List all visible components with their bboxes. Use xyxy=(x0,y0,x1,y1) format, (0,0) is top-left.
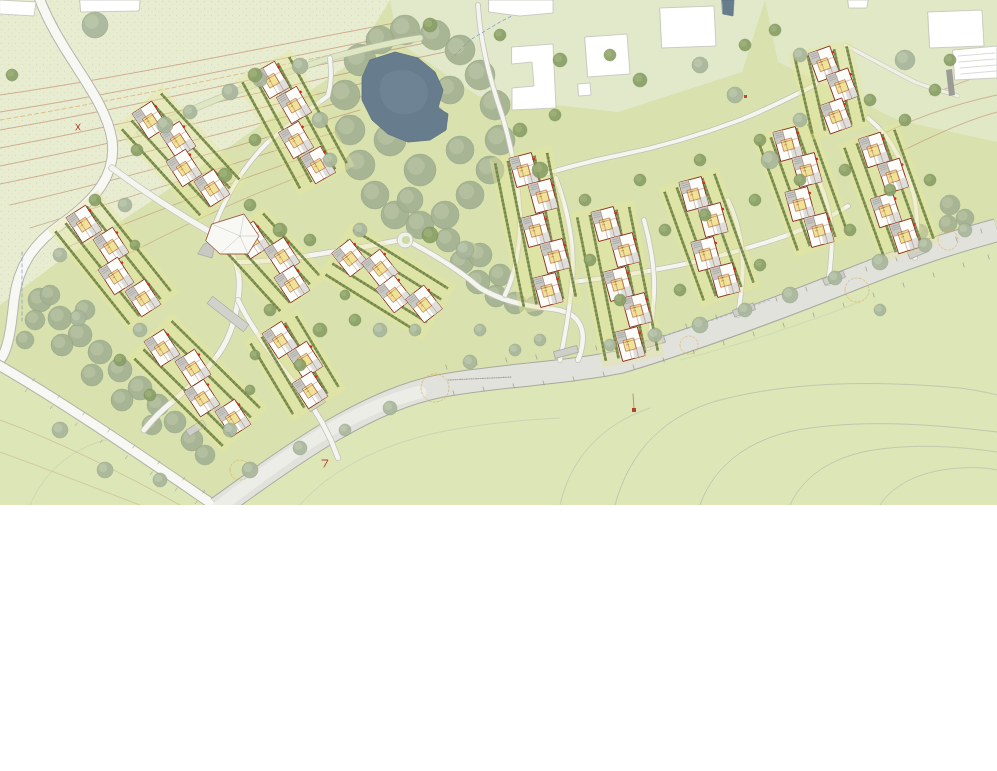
site-plan-page xyxy=(0,0,997,771)
empty-margin xyxy=(0,505,997,771)
site-plan-canvas xyxy=(0,0,997,505)
map-layers xyxy=(0,0,997,505)
site-plan-svg xyxy=(0,0,997,505)
